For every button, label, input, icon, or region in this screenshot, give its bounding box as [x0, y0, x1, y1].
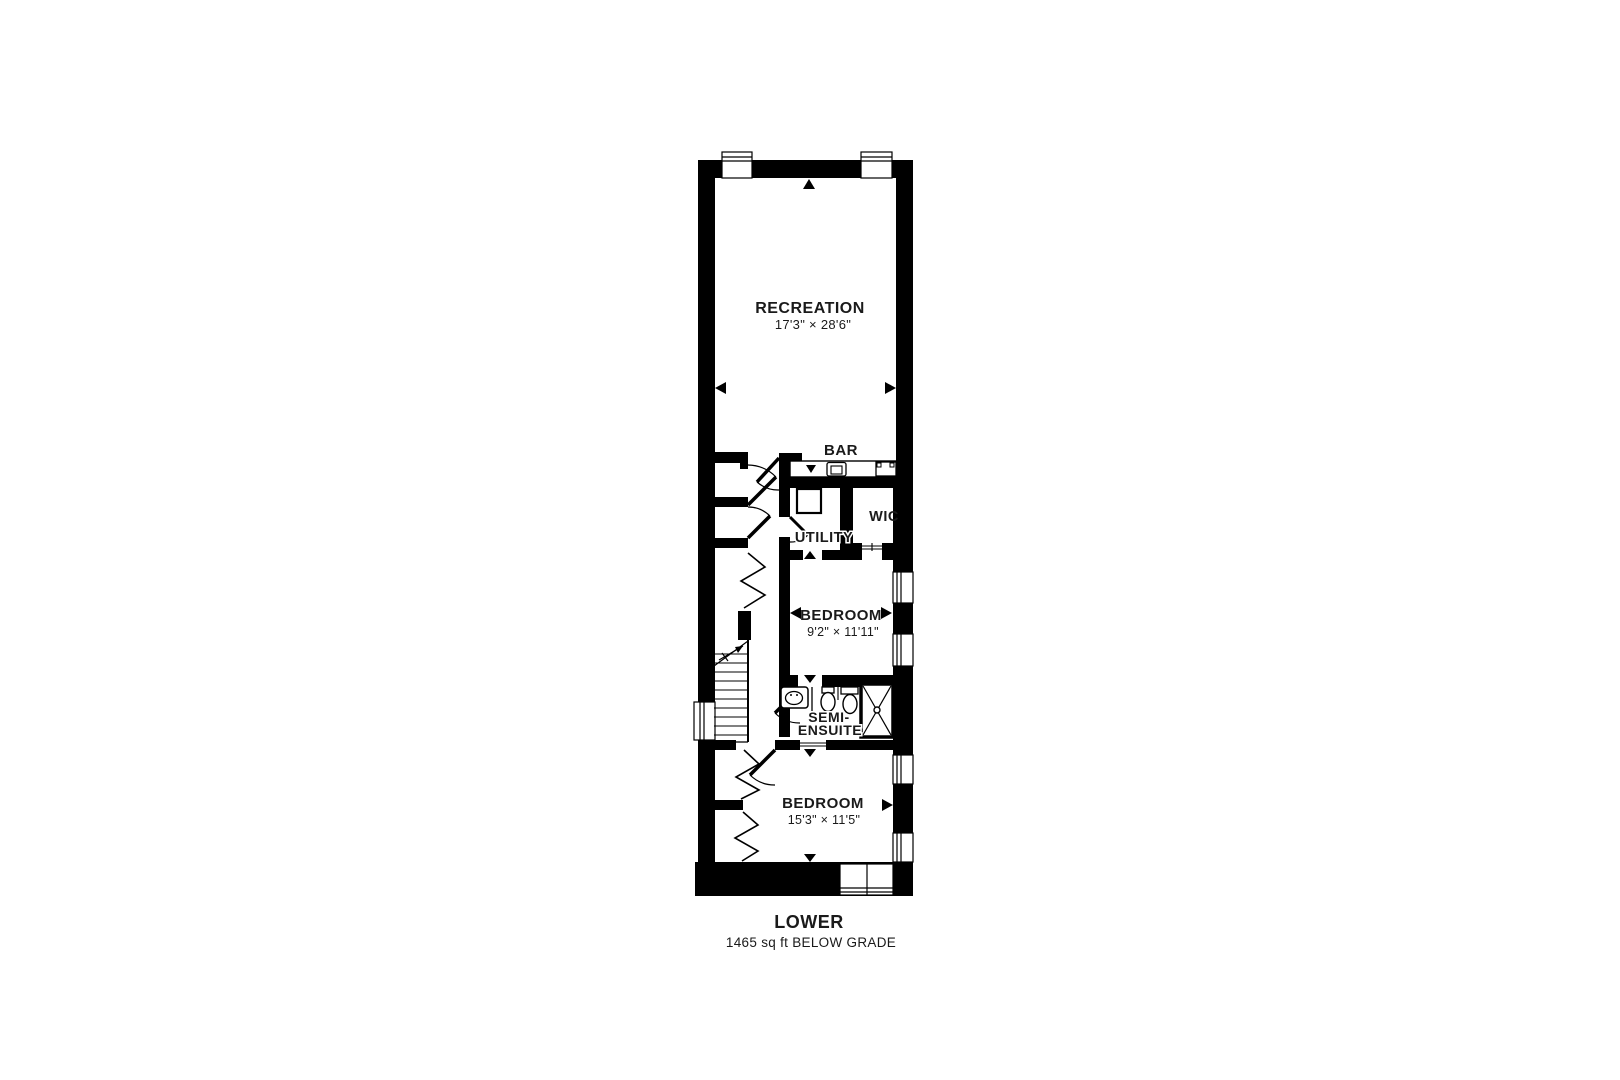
marker-recreation-right — [885, 382, 896, 394]
floor-plan-page: RECREATION 17'3" × 28'6" BAR WIC UTILITY… — [0, 0, 1620, 1080]
level-title: LOWER — [774, 912, 844, 932]
marker-bedroom1-top — [804, 551, 816, 559]
floor-plan-drawing: RECREATION 17'3" × 28'6" BAR WIC UTILITY… — [0, 0, 1620, 1080]
bar-counter — [790, 461, 896, 477]
bedroom1-top-wall-b — [822, 550, 862, 560]
marker-bedroom2-right — [882, 799, 893, 811]
bar-sink — [827, 463, 846, 477]
bifold-corridor-closet — [741, 553, 765, 608]
window-right-4 — [893, 833, 913, 862]
window-top-right — [861, 152, 892, 178]
area-note: 1465 sq ft BELOW GRADE — [726, 935, 896, 950]
bedroom-upper-label: BEDROOM — [800, 607, 882, 624]
wall-stub-c — [713, 538, 748, 548]
marker-bedroom1-right — [881, 607, 892, 619]
ensuite-bedroom2-opening — [800, 743, 826, 746]
marker-bedroom2-bottom — [804, 854, 816, 862]
wic-label: WIC — [869, 509, 899, 525]
spine-wall-top — [779, 453, 790, 517]
stair-jamb — [738, 611, 751, 640]
bifold-bedroom2-closet-2 — [735, 812, 758, 861]
window-top-left — [722, 152, 752, 178]
ensuite-bottom-wall-a — [775, 740, 800, 750]
bifold-doors — [735, 553, 765, 861]
semi-ensuite-label-line2: ENSUITE — [798, 722, 862, 738]
recreation-dims: 17'3" × 28'6" — [775, 317, 851, 332]
marker-bedroom1-bottom — [804, 675, 816, 683]
marker-ensuite-bottom — [804, 749, 816, 757]
bifold-bedroom2-closet-1 — [736, 750, 759, 799]
bedroom-upper-dims: 9'2" × 11'11" — [807, 625, 879, 639]
wic-bottom-wall-r — [882, 543, 913, 550]
window-bottom — [840, 864, 893, 895]
bedroom-lower-dims: 15'3" × 11'5" — [788, 813, 861, 827]
marker-recreation-left — [715, 382, 726, 394]
door-jamb — [740, 461, 748, 469]
bedroom1-bottom-wall-a — [779, 675, 798, 687]
bedroom1-top-wall-c — [882, 550, 913, 560]
window-right-2 — [893, 634, 913, 666]
bar-label: BAR — [824, 442, 858, 459]
vanity-sink — [781, 687, 808, 708]
toilet-1 — [821, 687, 835, 712]
bedroom1-top-wall-a — [779, 550, 803, 560]
utility-label: UTILITY — [795, 530, 853, 546]
marker-recreation-top — [803, 179, 815, 189]
utility-equipment — [797, 489, 821, 513]
plan-footer: LOWER 1465 sq ft BELOW GRADE — [726, 912, 896, 950]
stairs — [714, 632, 748, 742]
shower-stall — [861, 684, 893, 737]
wall-left — [698, 160, 715, 896]
wall-right-upper — [896, 160, 913, 468]
wall-stub-e — [712, 800, 743, 810]
window-right-1 — [893, 572, 913, 603]
exterior-walls — [695, 160, 913, 896]
door-closet-2 — [748, 507, 770, 538]
wall-stub-b — [713, 497, 748, 507]
ensuite-bottom-wall-b — [826, 740, 913, 750]
recreation-label: RECREATION — [755, 300, 865, 317]
shower-drain — [874, 707, 880, 713]
bar-appliance — [876, 462, 896, 476]
window-right-3 — [893, 755, 913, 784]
window-left — [694, 702, 715, 740]
wic-cased-opening — [862, 543, 882, 551]
bedroom-lower-label: BEDROOM — [782, 795, 864, 812]
